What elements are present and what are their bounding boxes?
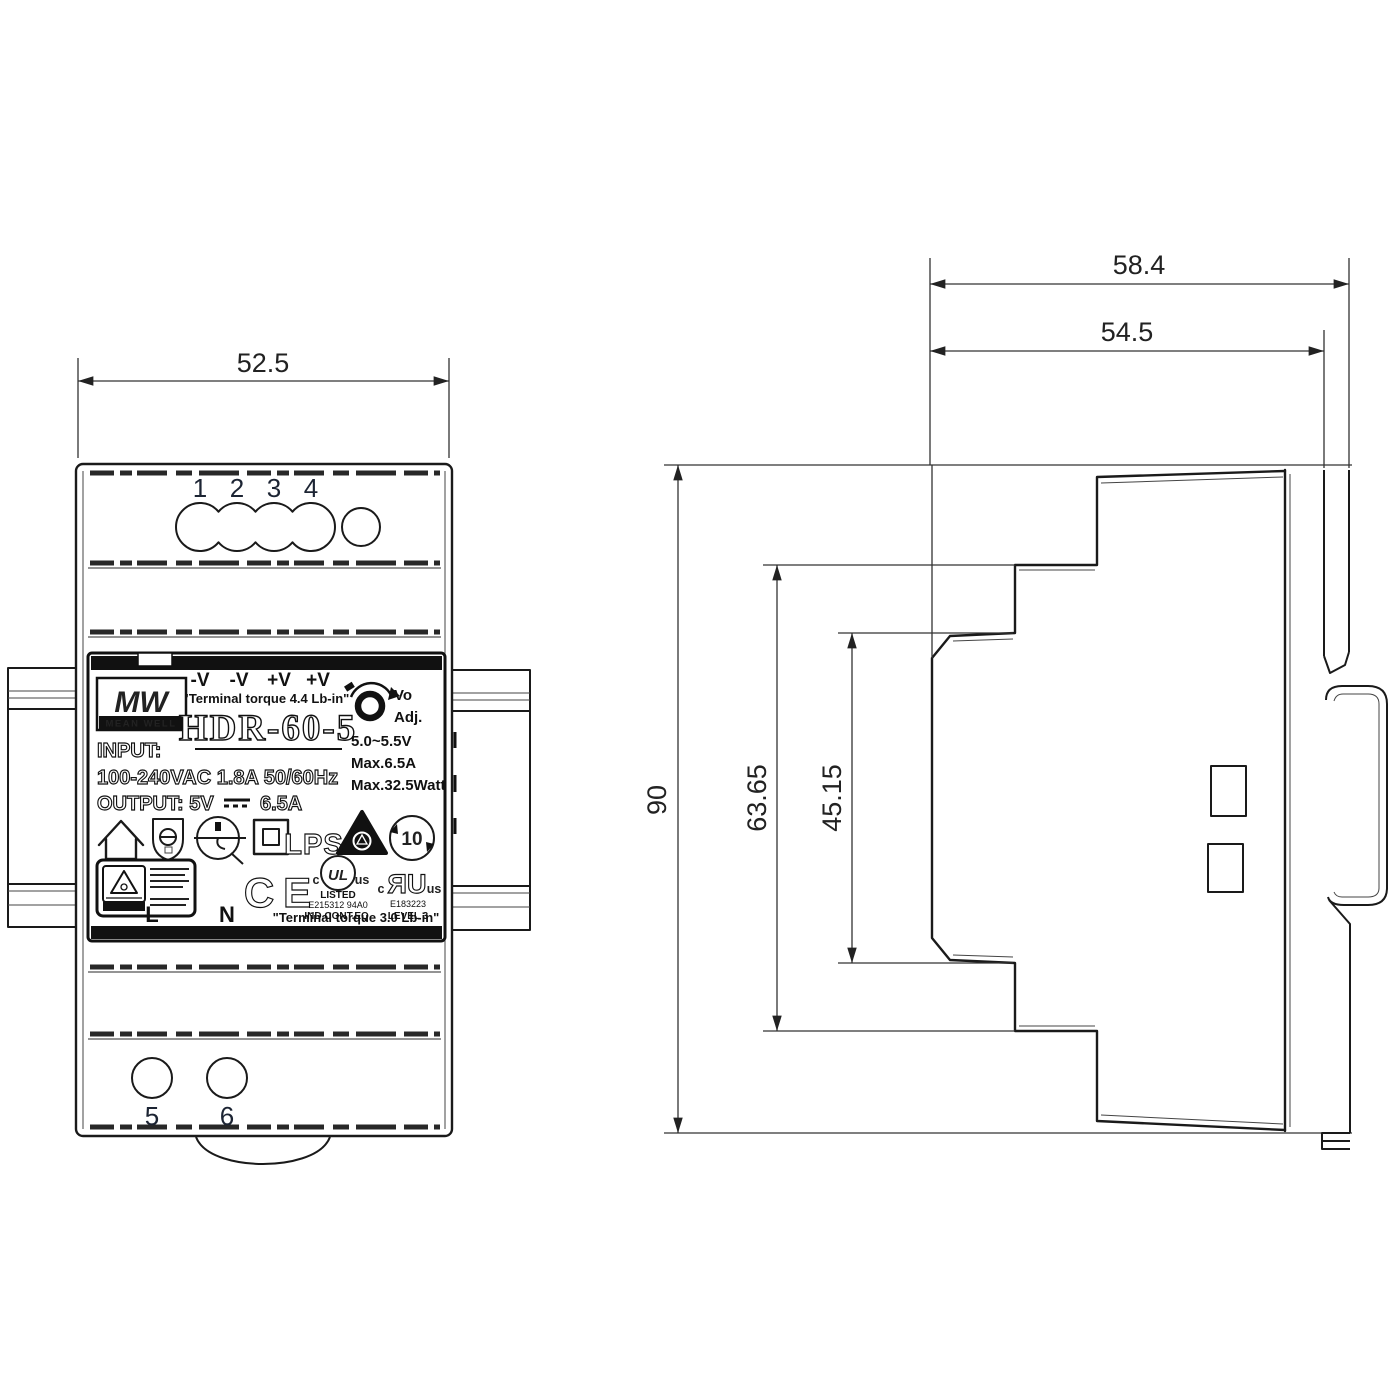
product-label: -V -V +V +V "Terminal torque 4.4 Lb-in" … [88, 653, 445, 941]
ul-letters: UL [328, 867, 348, 884]
brand-logo: MW MEAN WELL [97, 678, 186, 730]
spec-current: Max.6.5A [351, 755, 416, 772]
drawing-svg: 1 2 3 4 52.5 -V -V +V +V " [0, 0, 1400, 1400]
spec-power: Max.32.5Watt [351, 777, 445, 794]
spec-voltage: 5.0~5.5V [351, 733, 411, 750]
clip-foot [1322, 1133, 1350, 1149]
input-label: INPUT: [97, 740, 161, 762]
efup-number: 10 [401, 829, 422, 850]
dim-overall-height: 90 [642, 465, 678, 1133]
din-rail-right-flange [452, 670, 530, 930]
dim-total-depth: 58.4 [930, 250, 1349, 468]
dimension-text: 45.15 [817, 764, 847, 832]
vent-slot [1208, 844, 1243, 892]
polarity-mark: +V [306, 670, 330, 691]
bottom-terminals: 5 6 [132, 1058, 247, 1131]
input-terminal-slot[interactable] [176, 503, 335, 551]
mechanical-drawing-page: 1 2 3 4 52.5 -V -V +V +V " [0, 0, 1400, 1400]
output-current: 6.5A [260, 793, 302, 815]
terminal-number: 3 [267, 473, 281, 503]
terminal-number: 1 [193, 473, 207, 503]
neutral-terminal-label: N [219, 902, 235, 927]
dim-step2-height: 45.15 [817, 633, 1013, 963]
clip-hook [1324, 652, 1349, 673]
top-terminal-numbers: 1 2 3 4 [193, 473, 318, 503]
polarity-mark: -V [230, 670, 249, 691]
terminal-number: 5 [145, 1101, 159, 1131]
label-bottom-bar [91, 926, 442, 939]
ru-c: c [378, 882, 385, 896]
ru-us: us [427, 882, 442, 896]
din-rail-right [452, 670, 530, 930]
vent-slot [1211, 766, 1246, 816]
ru-file-number: E183223 [390, 899, 426, 909]
input-rating: 100-240VAC 1.8A 50/60Hz [97, 767, 338, 789]
torque-note-top: "Terminal torque 4.4 Lb-in" [183, 691, 350, 706]
line-terminal-label: L [145, 902, 158, 927]
label-top-notch [138, 653, 172, 666]
clip-spring-inner [1334, 694, 1379, 897]
profile-double-lines [953, 477, 1283, 1124]
clip-lower-edge [1329, 900, 1350, 1133]
din-rail-left [8, 668, 76, 927]
dimension-text: 58.4 [1113, 250, 1166, 280]
pot-label-vo: Vo [394, 687, 412, 704]
din-clip-side[interactable] [1322, 470, 1387, 1149]
front-view: 1 2 3 4 52.5 -V -V +V +V " [8, 348, 530, 1164]
screw-hole[interactable] [342, 508, 380, 546]
dimension-text: 54.5 [1101, 317, 1154, 347]
dim-front-width: 52.5 [78, 348, 449, 458]
terminal-number: 2 [230, 473, 244, 503]
ru-letters: ЯU [388, 869, 427, 899]
dimension-text: 63.65 [742, 764, 772, 832]
ul-us: us [355, 873, 370, 887]
polarity-mark: +V [267, 670, 291, 691]
side-view: 58.4 54.5 90 63.65 45.15 [642, 250, 1387, 1149]
dimension-text: 52.5 [237, 348, 290, 378]
clip-spring-outer [1326, 686, 1387, 905]
din-clip-tab[interactable] [196, 1137, 330, 1164]
output-label: OUTPUT: 5V [97, 793, 214, 815]
terminal-number: 6 [220, 1101, 234, 1131]
torque-note-bottom: "Terminal torque 3.0 Lb-in" [273, 910, 440, 925]
model-number: HDR-60-5 [179, 708, 357, 749]
brand-name: MEAN WELL [105, 719, 176, 730]
ul-c: c [313, 873, 320, 887]
terminal-hole[interactable] [132, 1058, 172, 1098]
terminal-hole[interactable] [207, 1058, 247, 1098]
polarity-mark: -V [191, 670, 210, 691]
mw-logo-text: MW [114, 686, 170, 719]
pot-label-adj: Adj. [394, 709, 422, 726]
terminal-number: 4 [304, 473, 318, 503]
dim-body-depth: 54.5 [930, 317, 1324, 468]
dimension-text: 90 [642, 785, 672, 815]
ul-file-number: E215312 94A0 [308, 900, 368, 910]
din-rail-left-flange [8, 668, 76, 927]
pot-knob[interactable] [358, 694, 382, 718]
